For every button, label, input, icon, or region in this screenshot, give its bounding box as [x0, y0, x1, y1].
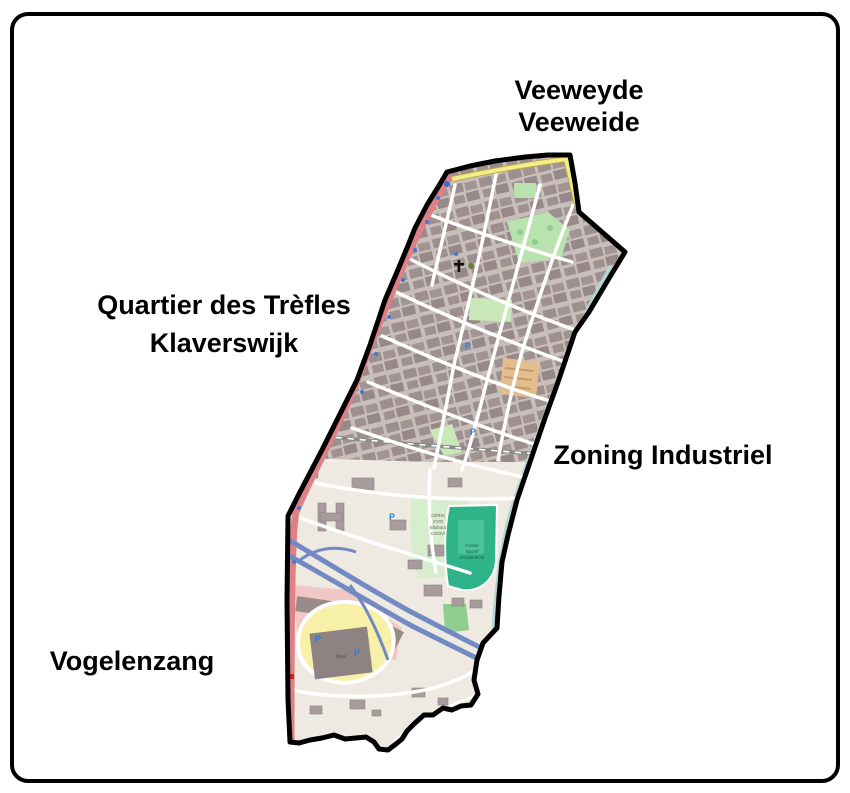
label-zoning-line1: Zoning Industriel [554, 441, 773, 469]
tree [517, 229, 523, 235]
svg-text:Sportif: Sportif [465, 549, 479, 554]
parking-icon: P [354, 648, 360, 658]
tree [532, 239, 538, 245]
park-area [514, 183, 536, 198]
label-zoning-industriel: Zoning Industriel [554, 441, 773, 469]
svg-text:CVO: CVO [433, 519, 443, 524]
ceria-label: CERIA CVO Elishout COOVI [430, 513, 447, 536]
label-trefles-line2: Klaverswijk [97, 324, 351, 362]
label-veeweyde-line1: Veeweyde [514, 74, 643, 106]
label-veeweyde: Veeweyde Veeweide [514, 74, 643, 138]
svg-text:d'Anderlecht: d'Anderlecht [460, 555, 486, 560]
map-figure: P P P P P CERIA CVO Elishout COOVI Centr… [0, 0, 850, 793]
svg-text:COOVI: COOVI [431, 531, 446, 536]
label-vogelenzang: Vogelenzang [50, 647, 215, 675]
label-veeweyde-line2: Veeweide [514, 106, 643, 138]
tree [547, 225, 553, 231]
metro-icon [444, 181, 450, 187]
ikea-label: Ikea [336, 654, 347, 660]
svg-text:CERIA: CERIA [431, 513, 445, 518]
label-trefles-line1: Quartier des Trèfles [97, 286, 351, 324]
parking-icon: P [465, 341, 471, 351]
parking-icon: P [470, 427, 476, 437]
label-vogelenzang-line1: Vogelenzang [50, 647, 215, 675]
monument-icon [468, 263, 474, 269]
svg-text:Centre: Centre [465, 543, 479, 548]
parking-icon: P [315, 634, 321, 644]
parking-icon: P [389, 512, 395, 522]
label-quartier-des-trefles: Quartier des Trèfles Klaverswijk [97, 286, 351, 362]
svg-text:Elishout: Elishout [430, 525, 447, 530]
